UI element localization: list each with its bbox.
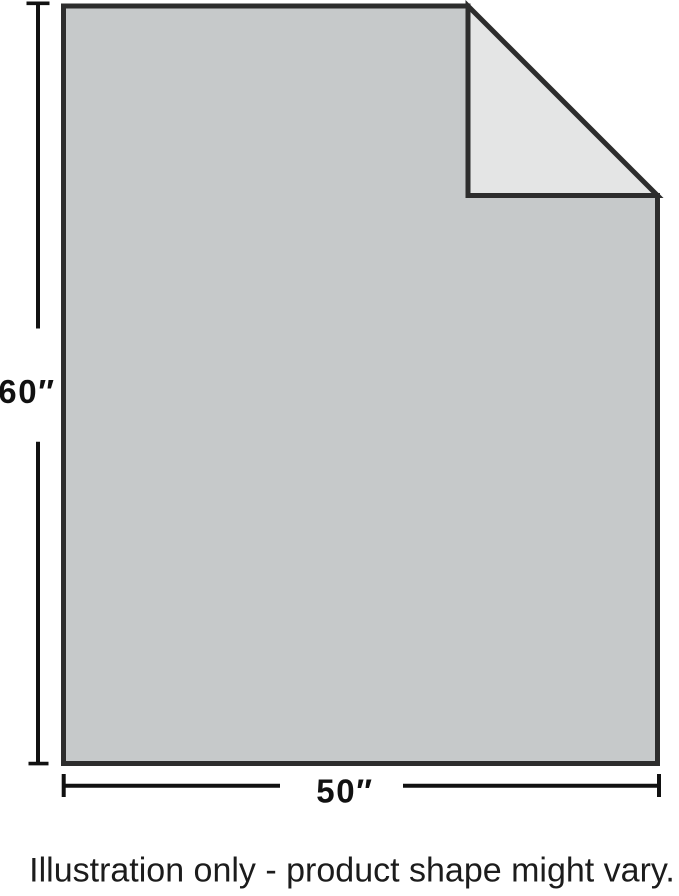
svg-text:Illustration only - product sh: Illustration only - product shape might …	[29, 852, 675, 890]
svg-text:50″: 50″	[316, 773, 374, 810]
svg-text:60″: 60″	[0, 373, 56, 410]
